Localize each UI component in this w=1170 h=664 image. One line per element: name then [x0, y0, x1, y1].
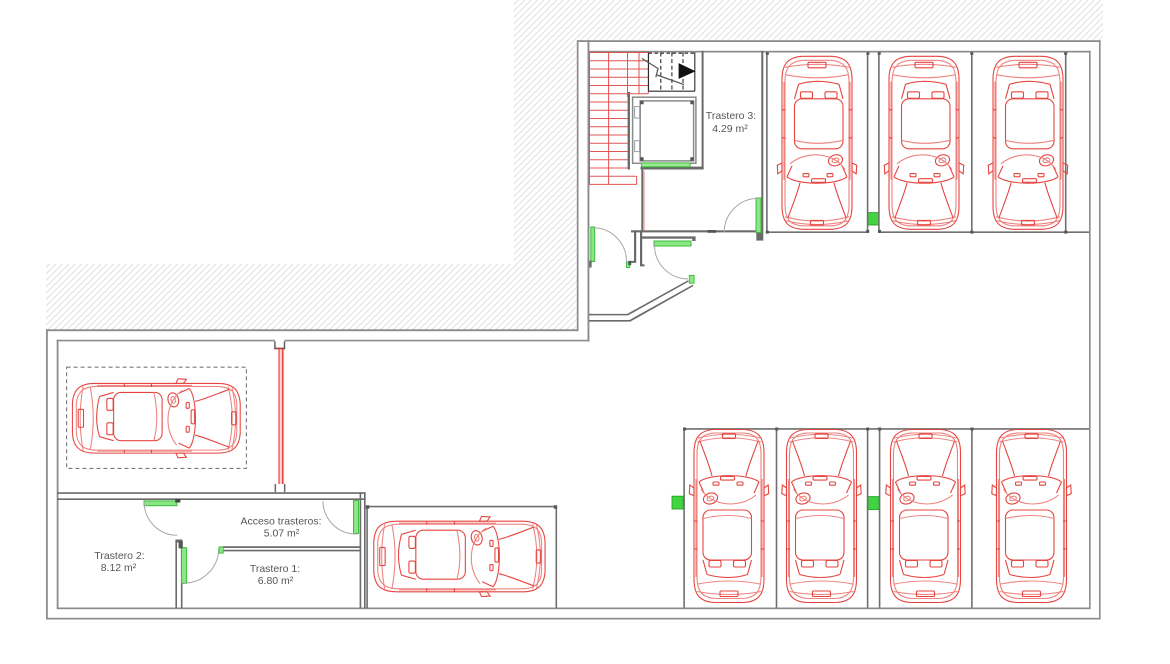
- svg-text:8.12 m²: 8.12 m²: [101, 562, 137, 574]
- svg-text:Trastero 2:: Trastero 2:: [94, 550, 144, 562]
- svg-text:Trastero 3:: Trastero 3:: [706, 110, 756, 122]
- svg-text:Trastero 1:: Trastero 1:: [250, 563, 300, 575]
- svg-text:Acceso trasteros:: Acceso trasteros:: [240, 516, 321, 528]
- svg-text:5.07 m²: 5.07 m²: [264, 528, 300, 540]
- svg-text:4.29 m²: 4.29 m²: [712, 123, 748, 135]
- svg-text:6.80 m²: 6.80 m²: [258, 575, 294, 587]
